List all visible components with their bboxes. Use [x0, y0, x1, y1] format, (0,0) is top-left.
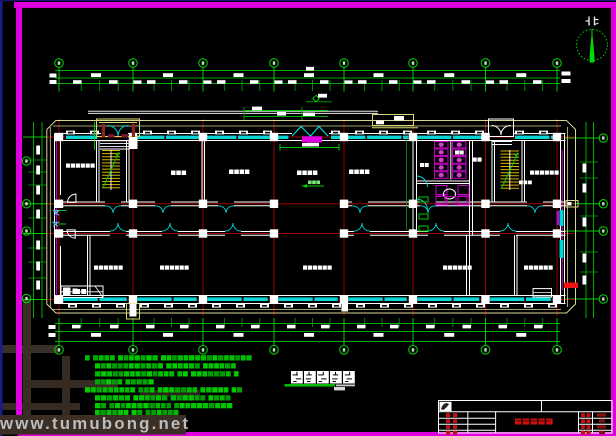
svg-text:www.tumubong.net: www.tumubong.net: [0, 414, 190, 433]
